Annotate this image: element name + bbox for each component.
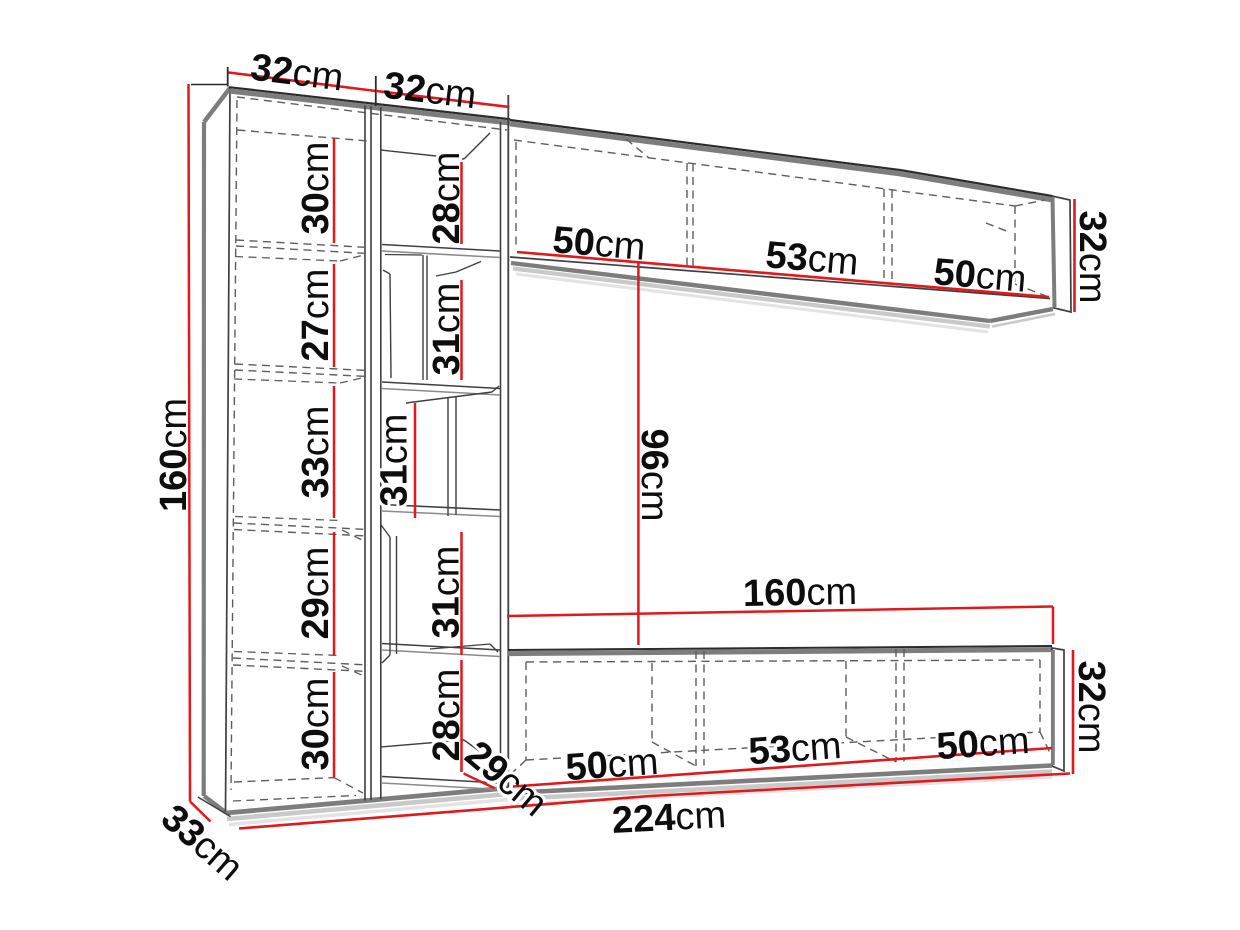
svg-text:29cm: 29cm (295, 547, 337, 640)
svg-text:50cm: 50cm (932, 251, 1028, 301)
svg-text:50cm: 50cm (935, 720, 1031, 768)
svg-text:28cm: 28cm (426, 669, 468, 762)
svg-text:31cm: 31cm (426, 546, 468, 639)
svg-text:224cm: 224cm (611, 794, 727, 842)
svg-text:32cm: 32cm (1070, 661, 1112, 754)
svg-text:31cm: 31cm (426, 283, 468, 376)
svg-text:28cm: 28cm (426, 152, 468, 245)
svg-text:96cm: 96cm (633, 429, 675, 522)
svg-text:30cm: 30cm (295, 142, 337, 235)
svg-text:32cm: 32cm (1071, 211, 1113, 304)
svg-text:160cm: 160cm (153, 398, 195, 512)
svg-text:30cm: 30cm (295, 678, 337, 771)
svg-text:160cm: 160cm (743, 571, 858, 615)
svg-text:33cm: 33cm (295, 406, 337, 499)
svg-text:53cm: 53cm (747, 725, 843, 773)
svg-text:53cm: 53cm (764, 234, 860, 284)
svg-text:31cm: 31cm (374, 414, 416, 507)
svg-text:50cm: 50cm (551, 219, 647, 269)
svg-text:50cm: 50cm (564, 741, 660, 789)
svg-text:27cm: 27cm (295, 269, 337, 362)
